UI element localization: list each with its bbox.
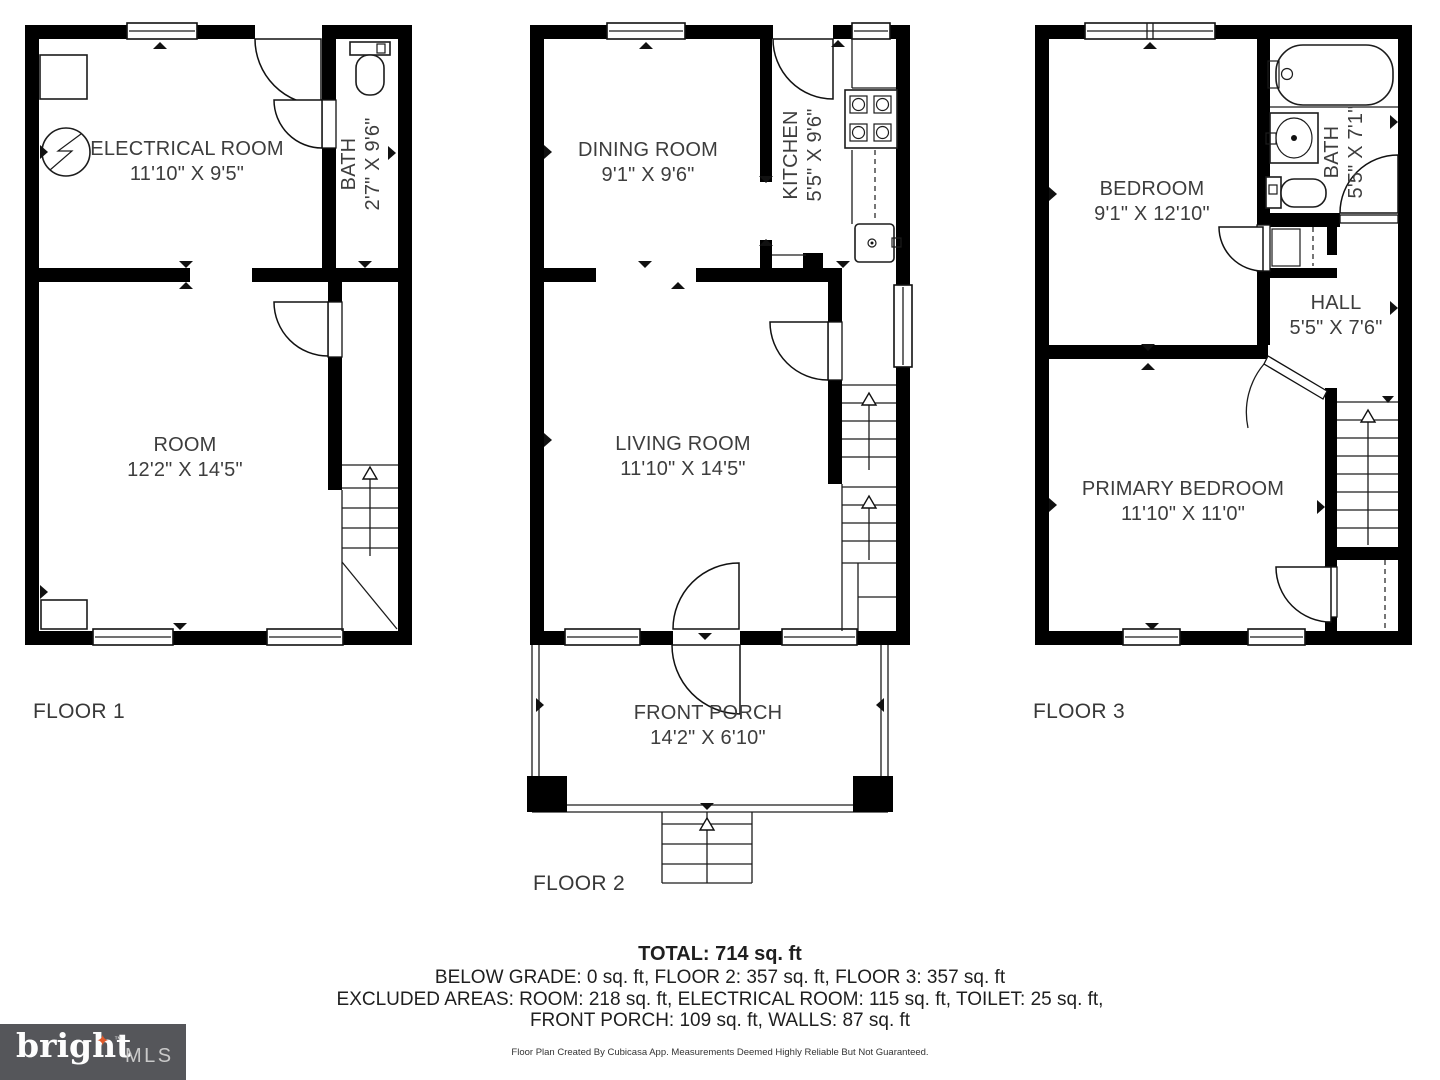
room-label-living-room: LIVING ROOM 11'10" X 14'5"	[615, 432, 751, 482]
room-label-kitchen: KITCHEN 5'5" X 9'6"	[779, 109, 827, 202]
logo-trademark: ™	[114, 1035, 122, 1044]
staircase	[342, 465, 398, 631]
toilet-fixture	[350, 42, 390, 95]
room-label-electrical-room: ELECTRICAL ROOM 11'10" X 9'5"	[90, 137, 283, 187]
staircase	[1337, 402, 1398, 545]
room-label-front-porch: FRONT PORCH 14'2" X 6'10"	[634, 701, 783, 751]
excluded-areas-1: EXCLUDED AREAS: ROOM: 218 sq. ft, ELECTR…	[0, 989, 1440, 1011]
floor3-label: FLOOR 3	[1033, 700, 1125, 724]
room-label-bedroom: BEDROOM 9'1" X 12'10"	[1094, 177, 1210, 227]
room-label-bath-floor3: BATH 5'5" X 7'1"	[1320, 106, 1368, 199]
room-label-bath-floor1: BATH 2'7" X 9'6"	[337, 118, 385, 211]
electrical-symbol	[42, 128, 90, 176]
cabinet-fixture	[41, 600, 87, 629]
total-area: TOTAL: 714 sq. ft	[0, 942, 1440, 967]
floorplan-page: ELECTRICAL ROOM 11'10" X 9'5" BATH 2'7" …	[0, 0, 1440, 1080]
floor1-plan	[25, 23, 412, 645]
room-label-primary-bedroom: PRIMARY BEDROOM 11'10" X 11'0"	[1082, 477, 1284, 527]
bright-mls-logo: bright ✦ ™ MLS	[0, 1024, 186, 1080]
logo-brand-text: bright	[16, 1026, 131, 1065]
floor1-label: FLOOR 1	[33, 700, 125, 724]
bathtub-fixture	[1268, 45, 1398, 107]
room-label-room: ROOM 12'2" X 14'5"	[127, 433, 243, 483]
sink-fixture	[855, 224, 901, 262]
floor2-label: FLOOR 2	[533, 872, 625, 896]
electrical-panel-fixture	[40, 55, 87, 99]
sink-fixture	[1266, 113, 1318, 163]
logo-star-icon: ✦	[96, 1031, 109, 1051]
floor-areas: BELOW GRADE: 0 sq. ft, FLOOR 2: 357 sq. …	[0, 967, 1440, 989]
toilet-fixture	[1266, 177, 1326, 208]
staircase	[842, 385, 896, 631]
logo-mls-text: MLS	[125, 1045, 174, 1068]
room-label-hall: HALL 5'5" X 7'6"	[1290, 291, 1383, 341]
disclaimer-text: Floor Plan Created By Cubicasa App. Meas…	[0, 1047, 1440, 1058]
excluded-areas-2: FRONT PORCH: 109 sq. ft, WALLS: 87 sq. f…	[0, 1010, 1440, 1032]
stove-fixture	[845, 90, 897, 148]
area-summary: TOTAL: 714 sq. ft BELOW GRADE: 0 sq. ft,…	[0, 942, 1440, 1058]
room-label-dining-room: DINING ROOM 9'1" X 9'6"	[578, 138, 718, 188]
